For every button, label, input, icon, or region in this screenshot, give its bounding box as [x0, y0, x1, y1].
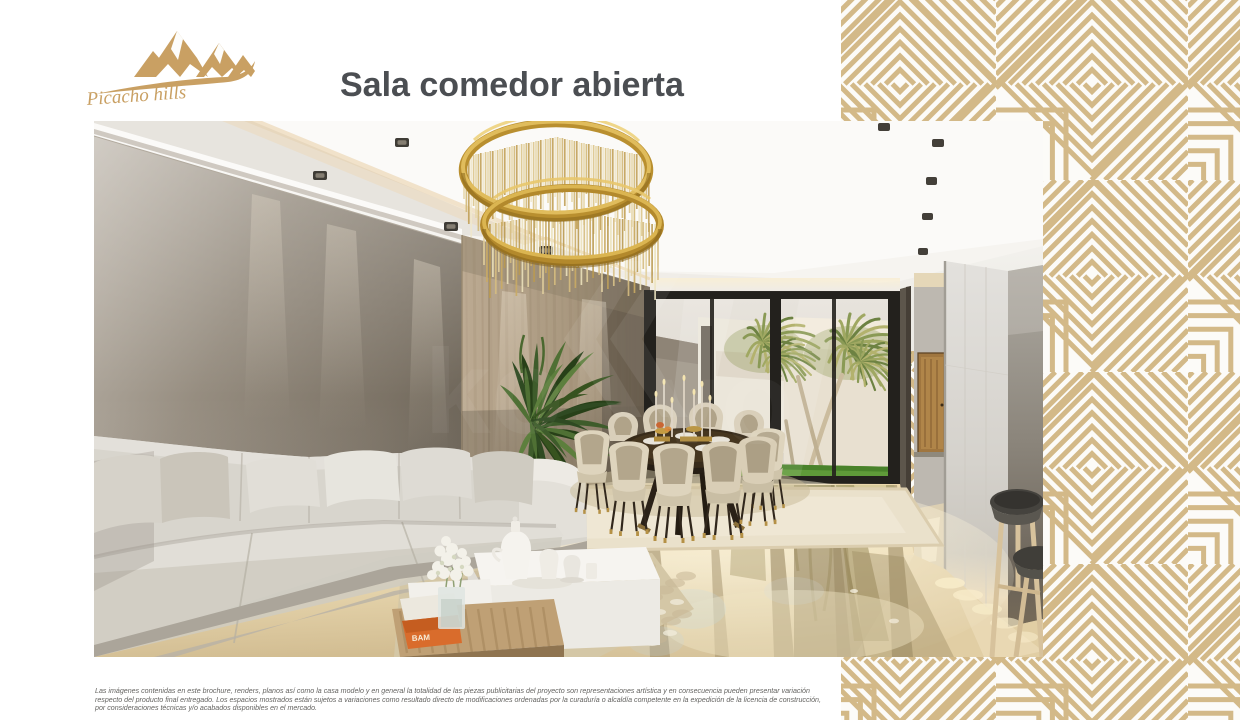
svg-text:BAM: BAM	[412, 633, 431, 643]
svg-text:Picacho hills: Picacho hills	[85, 82, 187, 110]
svg-text:vo: vo	[654, 335, 794, 469]
svg-text:ko: ko	[424, 325, 564, 459]
